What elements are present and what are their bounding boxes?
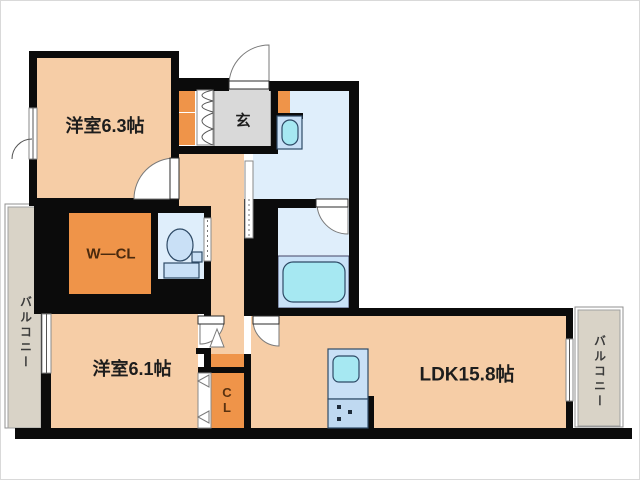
label-bedroom1: 洋室6.3帖 (65, 112, 144, 138)
closet-upper-section (211, 354, 244, 368)
shoe-closet-upper (177, 91, 195, 112)
label-ldk: LDK15.8帖 (419, 360, 514, 387)
wall-segment (278, 308, 573, 316)
label-closet-c: C (222, 385, 231, 400)
shoe-closet-lower (177, 113, 195, 145)
entrance-door-leaf (229, 81, 269, 89)
floorplan-canvas: 洋室6.3帖 玄 W—CL 洋室6.1帖 LDK15.8帖 C L バルコニー … (0, 0, 640, 480)
bedroom1-door-leaf (170, 158, 179, 199)
wall-segment (171, 146, 278, 154)
floorplan-drawing (1, 1, 640, 480)
wall-segment (171, 51, 179, 158)
wall-segment (269, 81, 359, 91)
toilet-door (204, 218, 211, 261)
wall-segment (171, 78, 229, 91)
bedroom2-door-leaf (198, 316, 224, 324)
kitchen-sink-icon (333, 356, 359, 382)
label-entrance: 玄 (235, 110, 250, 131)
toilet-flush-icon (192, 252, 202, 262)
wall-segment (29, 51, 179, 58)
label-closet-l: L (223, 400, 231, 415)
wall-baseline (15, 428, 632, 439)
bathroom-door-leaf (316, 199, 348, 207)
stove-burner-icon (348, 410, 352, 414)
label-walk-in-closet: W—CL (86, 246, 135, 263)
entrance-door-swing (229, 45, 269, 85)
ldk-door-leaf (253, 316, 279, 324)
label-balcony-left: バルコニー (18, 296, 35, 371)
washroom-storage (278, 91, 290, 114)
washbasin-sink-icon (282, 120, 298, 145)
toilet-bowl-icon (167, 229, 193, 261)
label-bedroom2: 洋室6.1帖 (92, 355, 171, 381)
wall-segment (244, 354, 251, 428)
wall-segment (151, 213, 158, 279)
bathtub-icon (283, 262, 345, 302)
ldk-floor (251, 316, 566, 428)
wall-segment (196, 348, 211, 354)
wall-segment (198, 367, 251, 373)
label-balcony-right: バルコニー (592, 335, 609, 410)
stove-burner-icon (337, 405, 341, 409)
stove-burner-icon (337, 417, 341, 421)
toilet-tank-icon (164, 263, 199, 278)
wall-segment (151, 279, 211, 314)
label-closet: C L (222, 385, 231, 415)
wall-segment (278, 199, 316, 208)
wall-segment (349, 89, 359, 316)
